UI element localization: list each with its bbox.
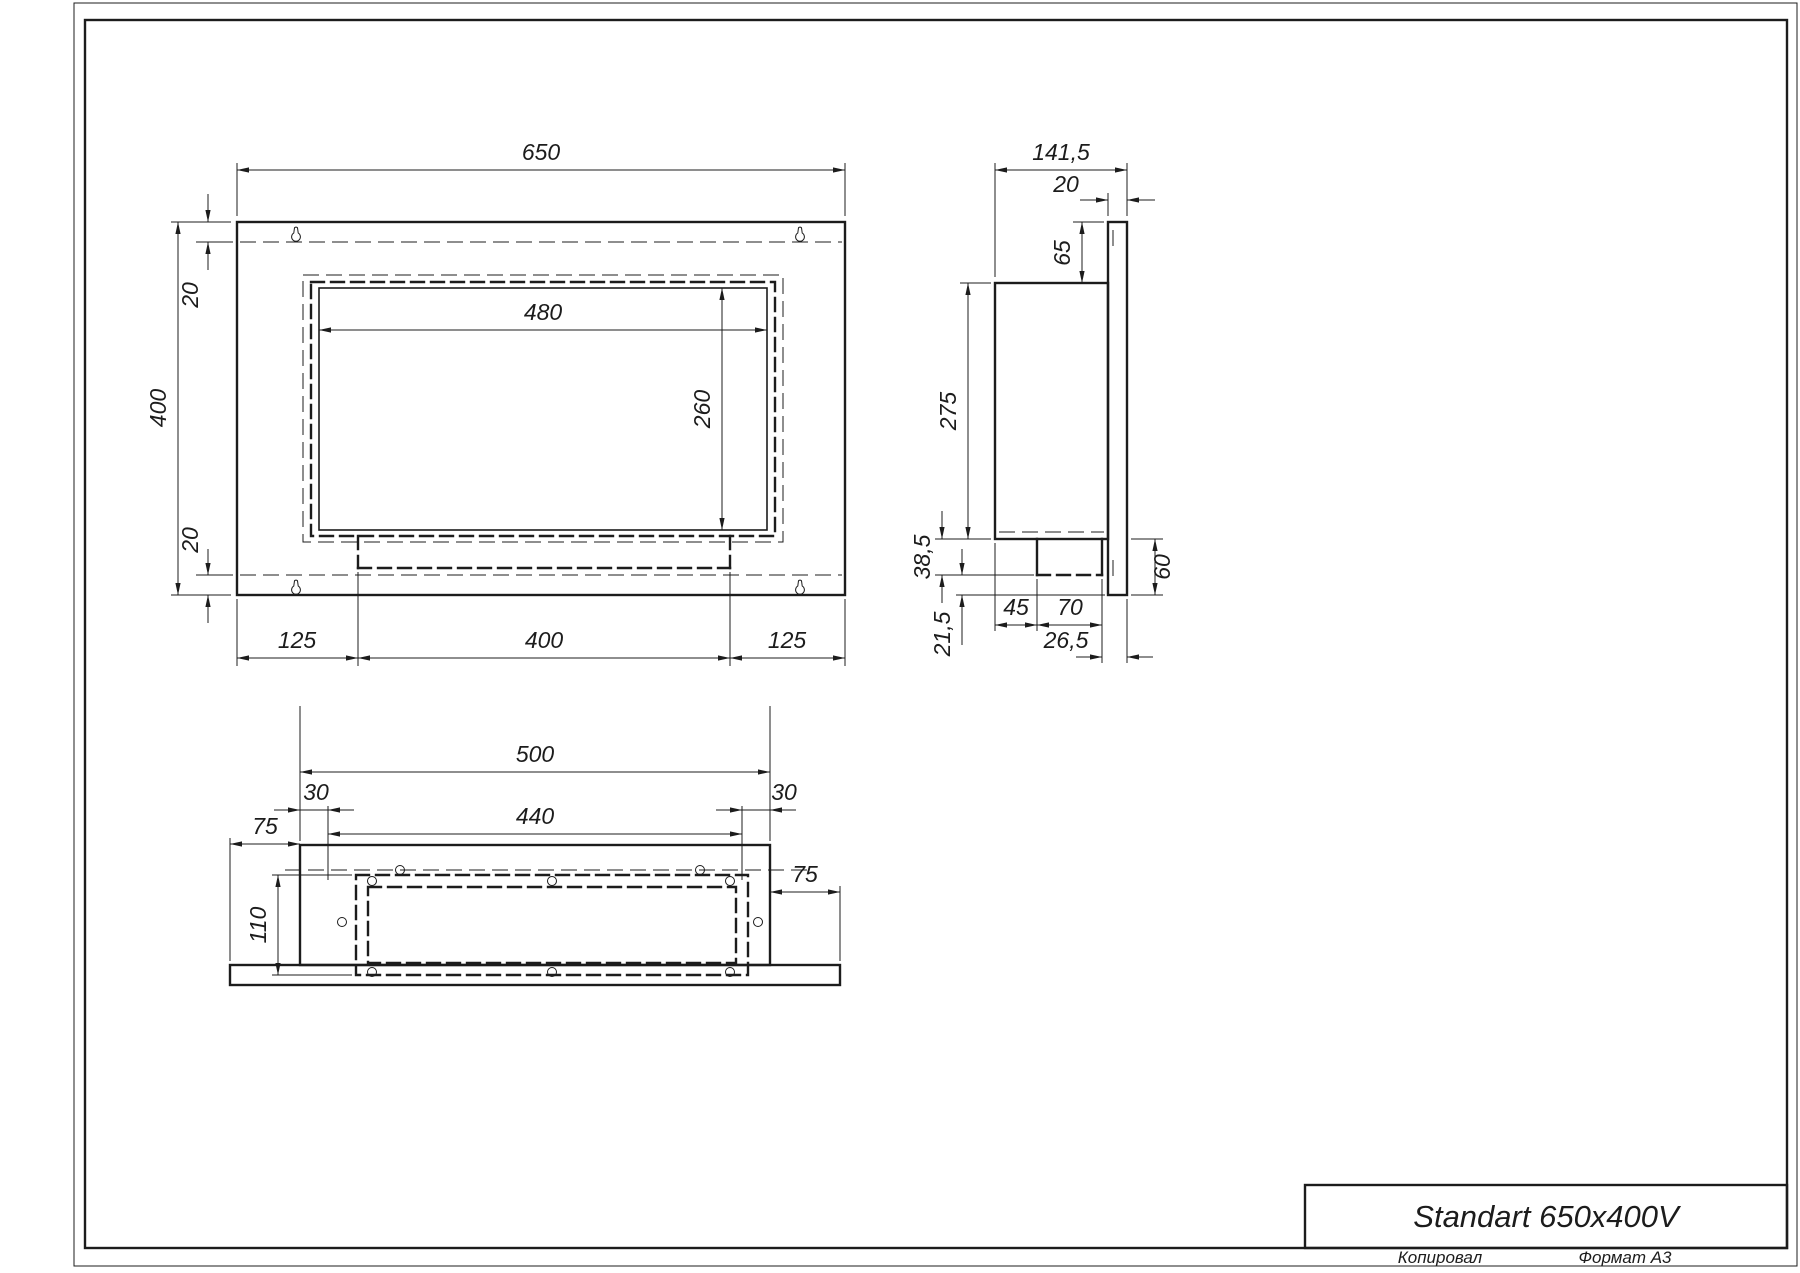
dim-side-bottom-gap: 21,5 (929, 611, 955, 657)
screw-hole (754, 918, 763, 927)
footer-format-label: Формат A3 (1578, 1248, 1672, 1267)
dim-side-total-depth: 141,5 (1032, 139, 1090, 165)
keyhole-mount-icon (292, 227, 301, 241)
dim-bottom-inset-right: 30 (771, 779, 797, 805)
dim-front-burner-width: 400 (525, 627, 564, 653)
dim-bottom-flange-right: 75 (792, 861, 818, 887)
dim-side-panel-overhang: 26,5 (1043, 627, 1089, 653)
dim-bottom-opening-width: 440 (516, 803, 555, 829)
dim-front-opening-height: 260 (689, 390, 715, 430)
keyhole-mount-icon (292, 580, 301, 594)
dim-bottom-flange-left: 75 (252, 813, 278, 839)
dim-side-bottom-extension: 60 (1149, 554, 1175, 580)
dim-front-total-width: 650 (522, 139, 561, 165)
dim-side-panel-thickness: 20 (1052, 171, 1079, 197)
screw-hole (338, 918, 347, 927)
dim-front-top-inset: 20 (177, 282, 203, 309)
keyhole-mount-icon (796, 580, 805, 594)
dim-front-opening-width: 480 (524, 299, 563, 325)
drawing-sheet: 650 400 20 20 480 260 125 400 125 (0, 0, 1800, 1273)
dim-front-bottom-left: 125 (278, 627, 317, 653)
screw-hole (368, 877, 377, 886)
screw-hole (726, 877, 735, 886)
dim-side-tray-offset: 45 (1003, 594, 1029, 620)
dim-side-body-height: 275 (935, 392, 961, 432)
footer-copied-label: Копировал (1398, 1248, 1483, 1267)
dim-bottom-housing-depth: 110 (245, 906, 271, 943)
front-view: 650 400 20 20 480 260 125 400 125 (145, 139, 845, 666)
technical-drawing: 650 400 20 20 480 260 125 400 125 (0, 0, 1800, 1273)
dim-front-total-height: 400 (145, 389, 171, 428)
dim-side-top-offset: 65 (1049, 240, 1075, 266)
dim-front-bottom-right: 125 (768, 627, 807, 653)
part-title: Standart 650x400V (1413, 1199, 1682, 1234)
screw-hole (548, 877, 557, 886)
title-block: Standart 650x400V (1305, 1185, 1787, 1248)
side-view: 141,5 20 65 275 38,5 21,5 45 70 (909, 139, 1175, 663)
dim-front-bottom-inset: 20 (177, 527, 203, 554)
bottom-view: 500 30 30 440 75 75 110 (230, 706, 840, 985)
dim-bottom-body-width: 500 (516, 741, 555, 767)
dim-bottom-inset-left: 30 (303, 779, 329, 805)
dim-side-tray-drop: 38,5 (909, 534, 935, 579)
dim-side-tray-depth: 70 (1057, 594, 1083, 620)
keyhole-mount-icon (796, 227, 805, 241)
